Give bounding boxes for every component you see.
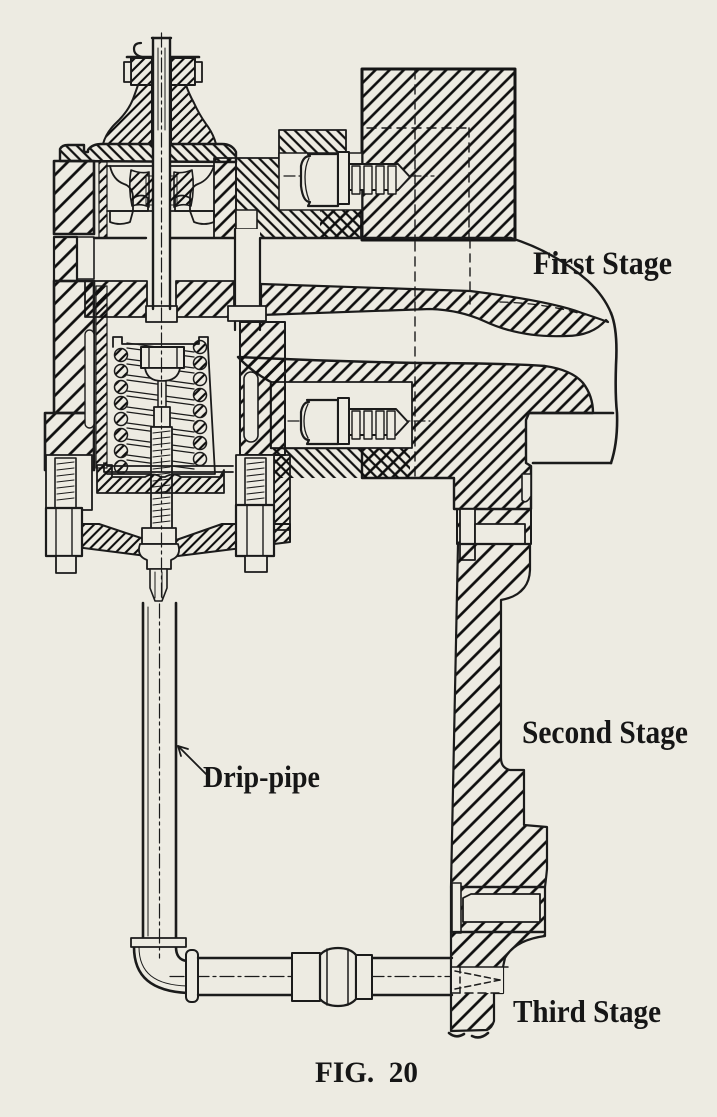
svg-text:First Stage: First Stage — [533, 246, 672, 282]
svg-text:Second Stage: Second Stage — [522, 715, 688, 751]
svg-text:Drip-pipe: Drip-pipe — [203, 759, 320, 794]
svg-text:Third Stage: Third Stage — [513, 993, 661, 1029]
svg-text:FIG. 20: FIG. 20 — [315, 1056, 418, 1089]
